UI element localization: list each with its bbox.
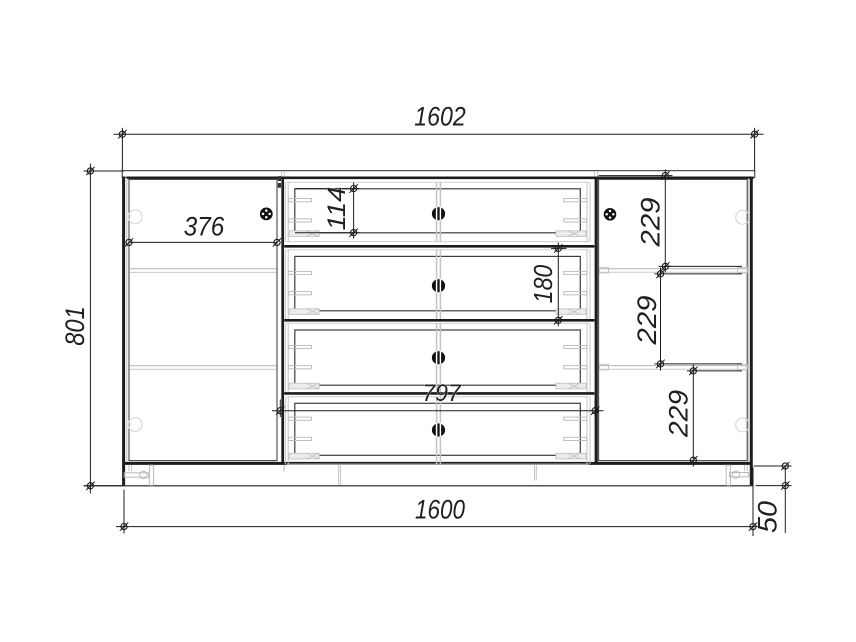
svg-text:376: 376	[184, 212, 225, 242]
svg-text:1600: 1600	[415, 495, 465, 525]
svg-text:801: 801	[60, 306, 90, 346]
svg-text:180: 180	[528, 264, 558, 303]
svg-text:229: 229	[636, 198, 666, 248]
svg-text:229: 229	[632, 296, 662, 346]
svg-text:797: 797	[422, 380, 462, 407]
svg-text:1602: 1602	[414, 101, 466, 131]
svg-text:229: 229	[664, 390, 694, 438]
svg-text:50: 50	[753, 501, 783, 533]
svg-text:114: 114	[323, 187, 351, 231]
